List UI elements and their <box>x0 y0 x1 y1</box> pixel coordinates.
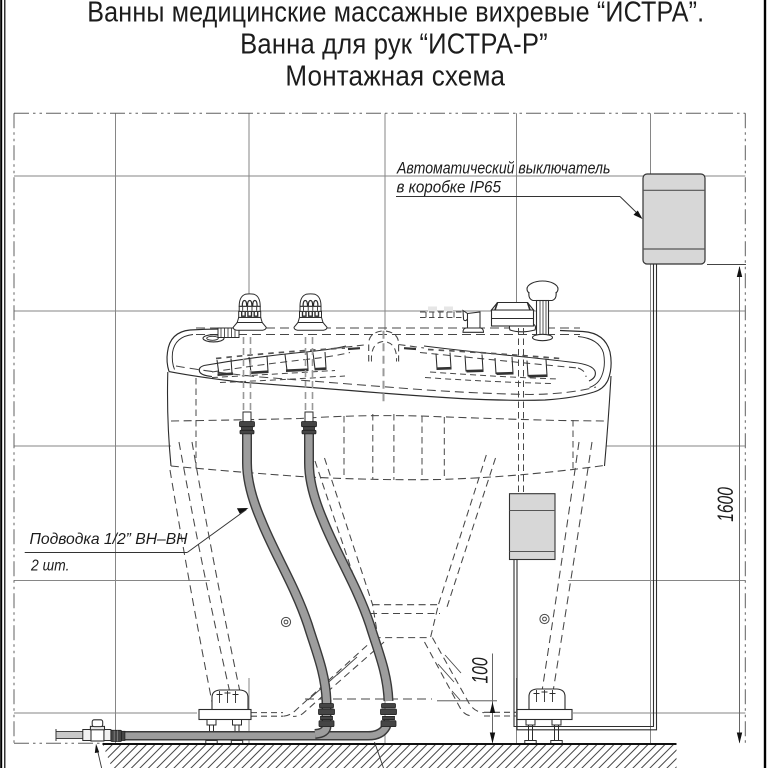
svg-text:2 шт.: 2 шт. <box>30 557 69 575</box>
svg-text:Подводка 1/2” ВН–ВН: Подводка 1/2” ВН–ВН <box>30 531 189 548</box>
svg-text:Ванны медицинские массажные ви: Ванны медицинские массажные вихревые “ИС… <box>87 0 704 28</box>
svg-text:Монтажная схема: Монтажная схема <box>285 59 505 92</box>
svg-text:в коробке IP65: в коробке IP65 <box>397 179 502 197</box>
svg-text:100: 100 <box>469 657 493 683</box>
svg-text:1600: 1600 <box>715 487 739 522</box>
svg-text:Ванна для рук “ИСТРА-Р”: Ванна для рук “ИСТРА-Р” <box>240 27 548 60</box>
svg-text:Автоматический выключатель: Автоматический выключатель <box>396 160 610 178</box>
